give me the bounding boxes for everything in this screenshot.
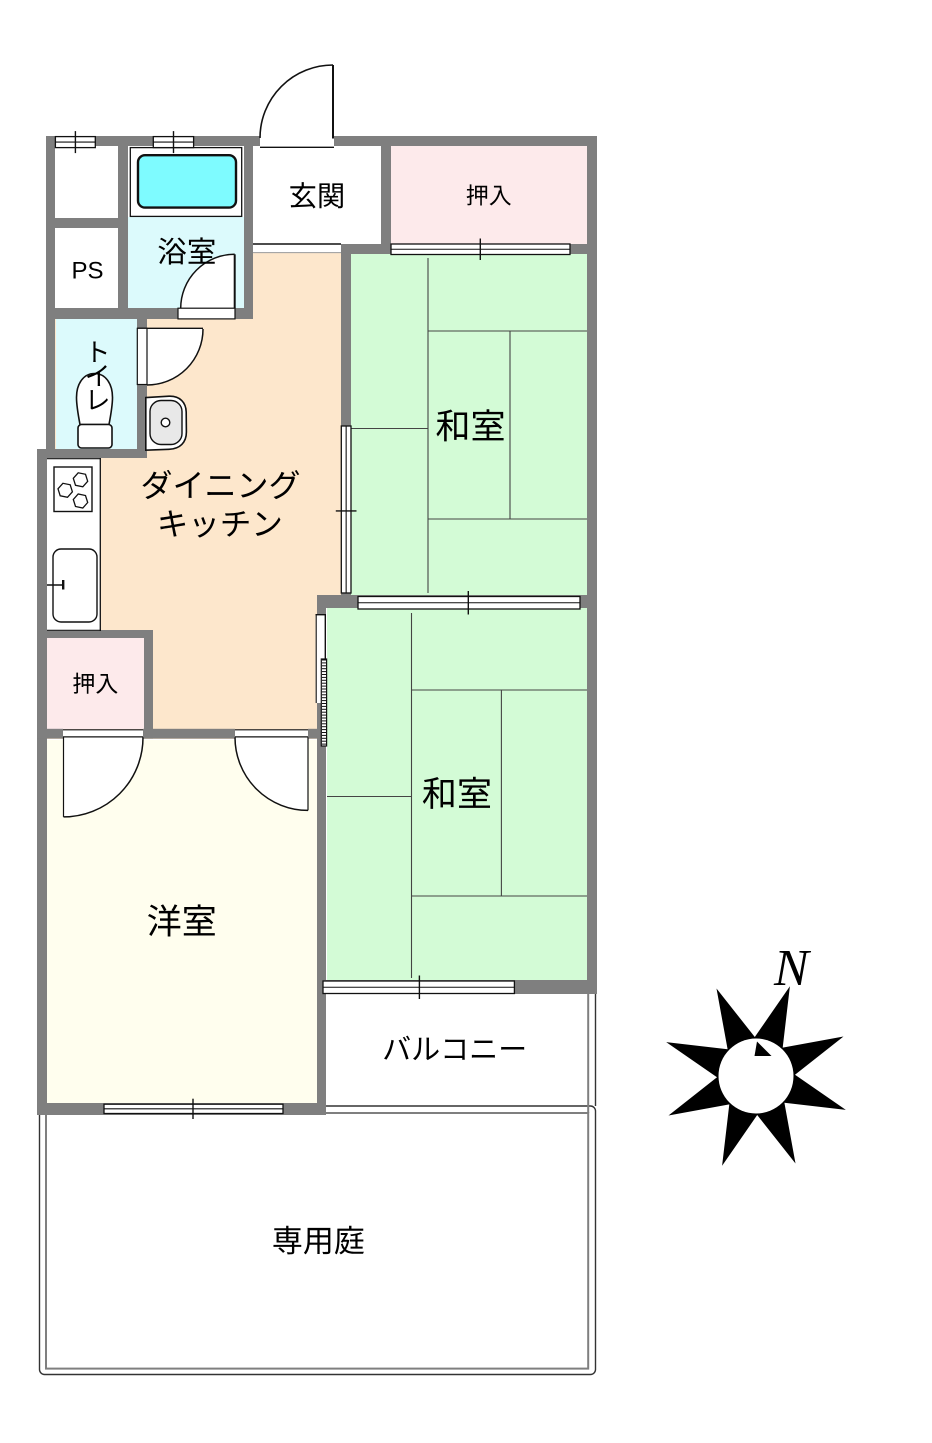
svg-text:PS: PS — [71, 258, 103, 285]
svg-text:N: N — [773, 940, 812, 997]
